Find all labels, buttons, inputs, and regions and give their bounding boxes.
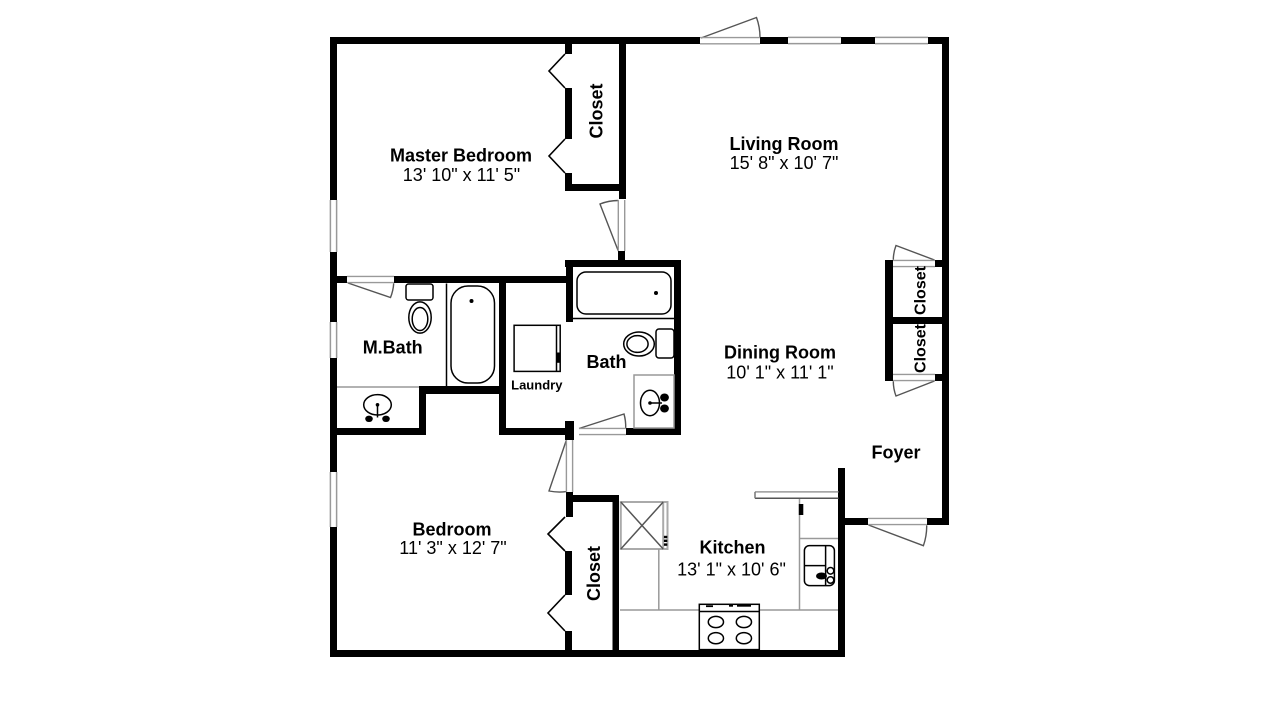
svg-text:Closet: Closet <box>913 323 930 373</box>
svg-text:13' 1" x 10' 6": 13' 1" x 10' 6" <box>677 560 786 580</box>
svg-text:Laundry: Laundry <box>511 378 563 393</box>
svg-text:Foyer: Foyer <box>871 443 920 463</box>
svg-text:13' 10" x 11' 5": 13' 10" x 11' 5" <box>403 165 520 185</box>
svg-text:11' 3" x 12' 7": 11' 3" x 12' 7" <box>399 538 506 558</box>
svg-text:Closet: Closet <box>584 546 604 601</box>
svg-text:M.Bath: M.Bath <box>363 338 423 358</box>
svg-text:Kitchen: Kitchen <box>699 538 765 558</box>
svg-text:Closet: Closet <box>587 83 607 138</box>
svg-text:Bedroom: Bedroom <box>412 520 491 540</box>
svg-text:Closet: Closet <box>913 265 930 315</box>
svg-text:Bath: Bath <box>587 352 627 372</box>
svg-text:Master Bedroom: Master Bedroom <box>390 146 532 166</box>
svg-text:Living Room: Living Room <box>730 134 839 154</box>
svg-text:Dining Room: Dining Room <box>724 343 836 363</box>
svg-text:15' 8" x 10' 7": 15' 8" x 10' 7" <box>730 153 839 173</box>
svg-text:10' 1" x 11' 1": 10' 1" x 11' 1" <box>726 363 833 383</box>
